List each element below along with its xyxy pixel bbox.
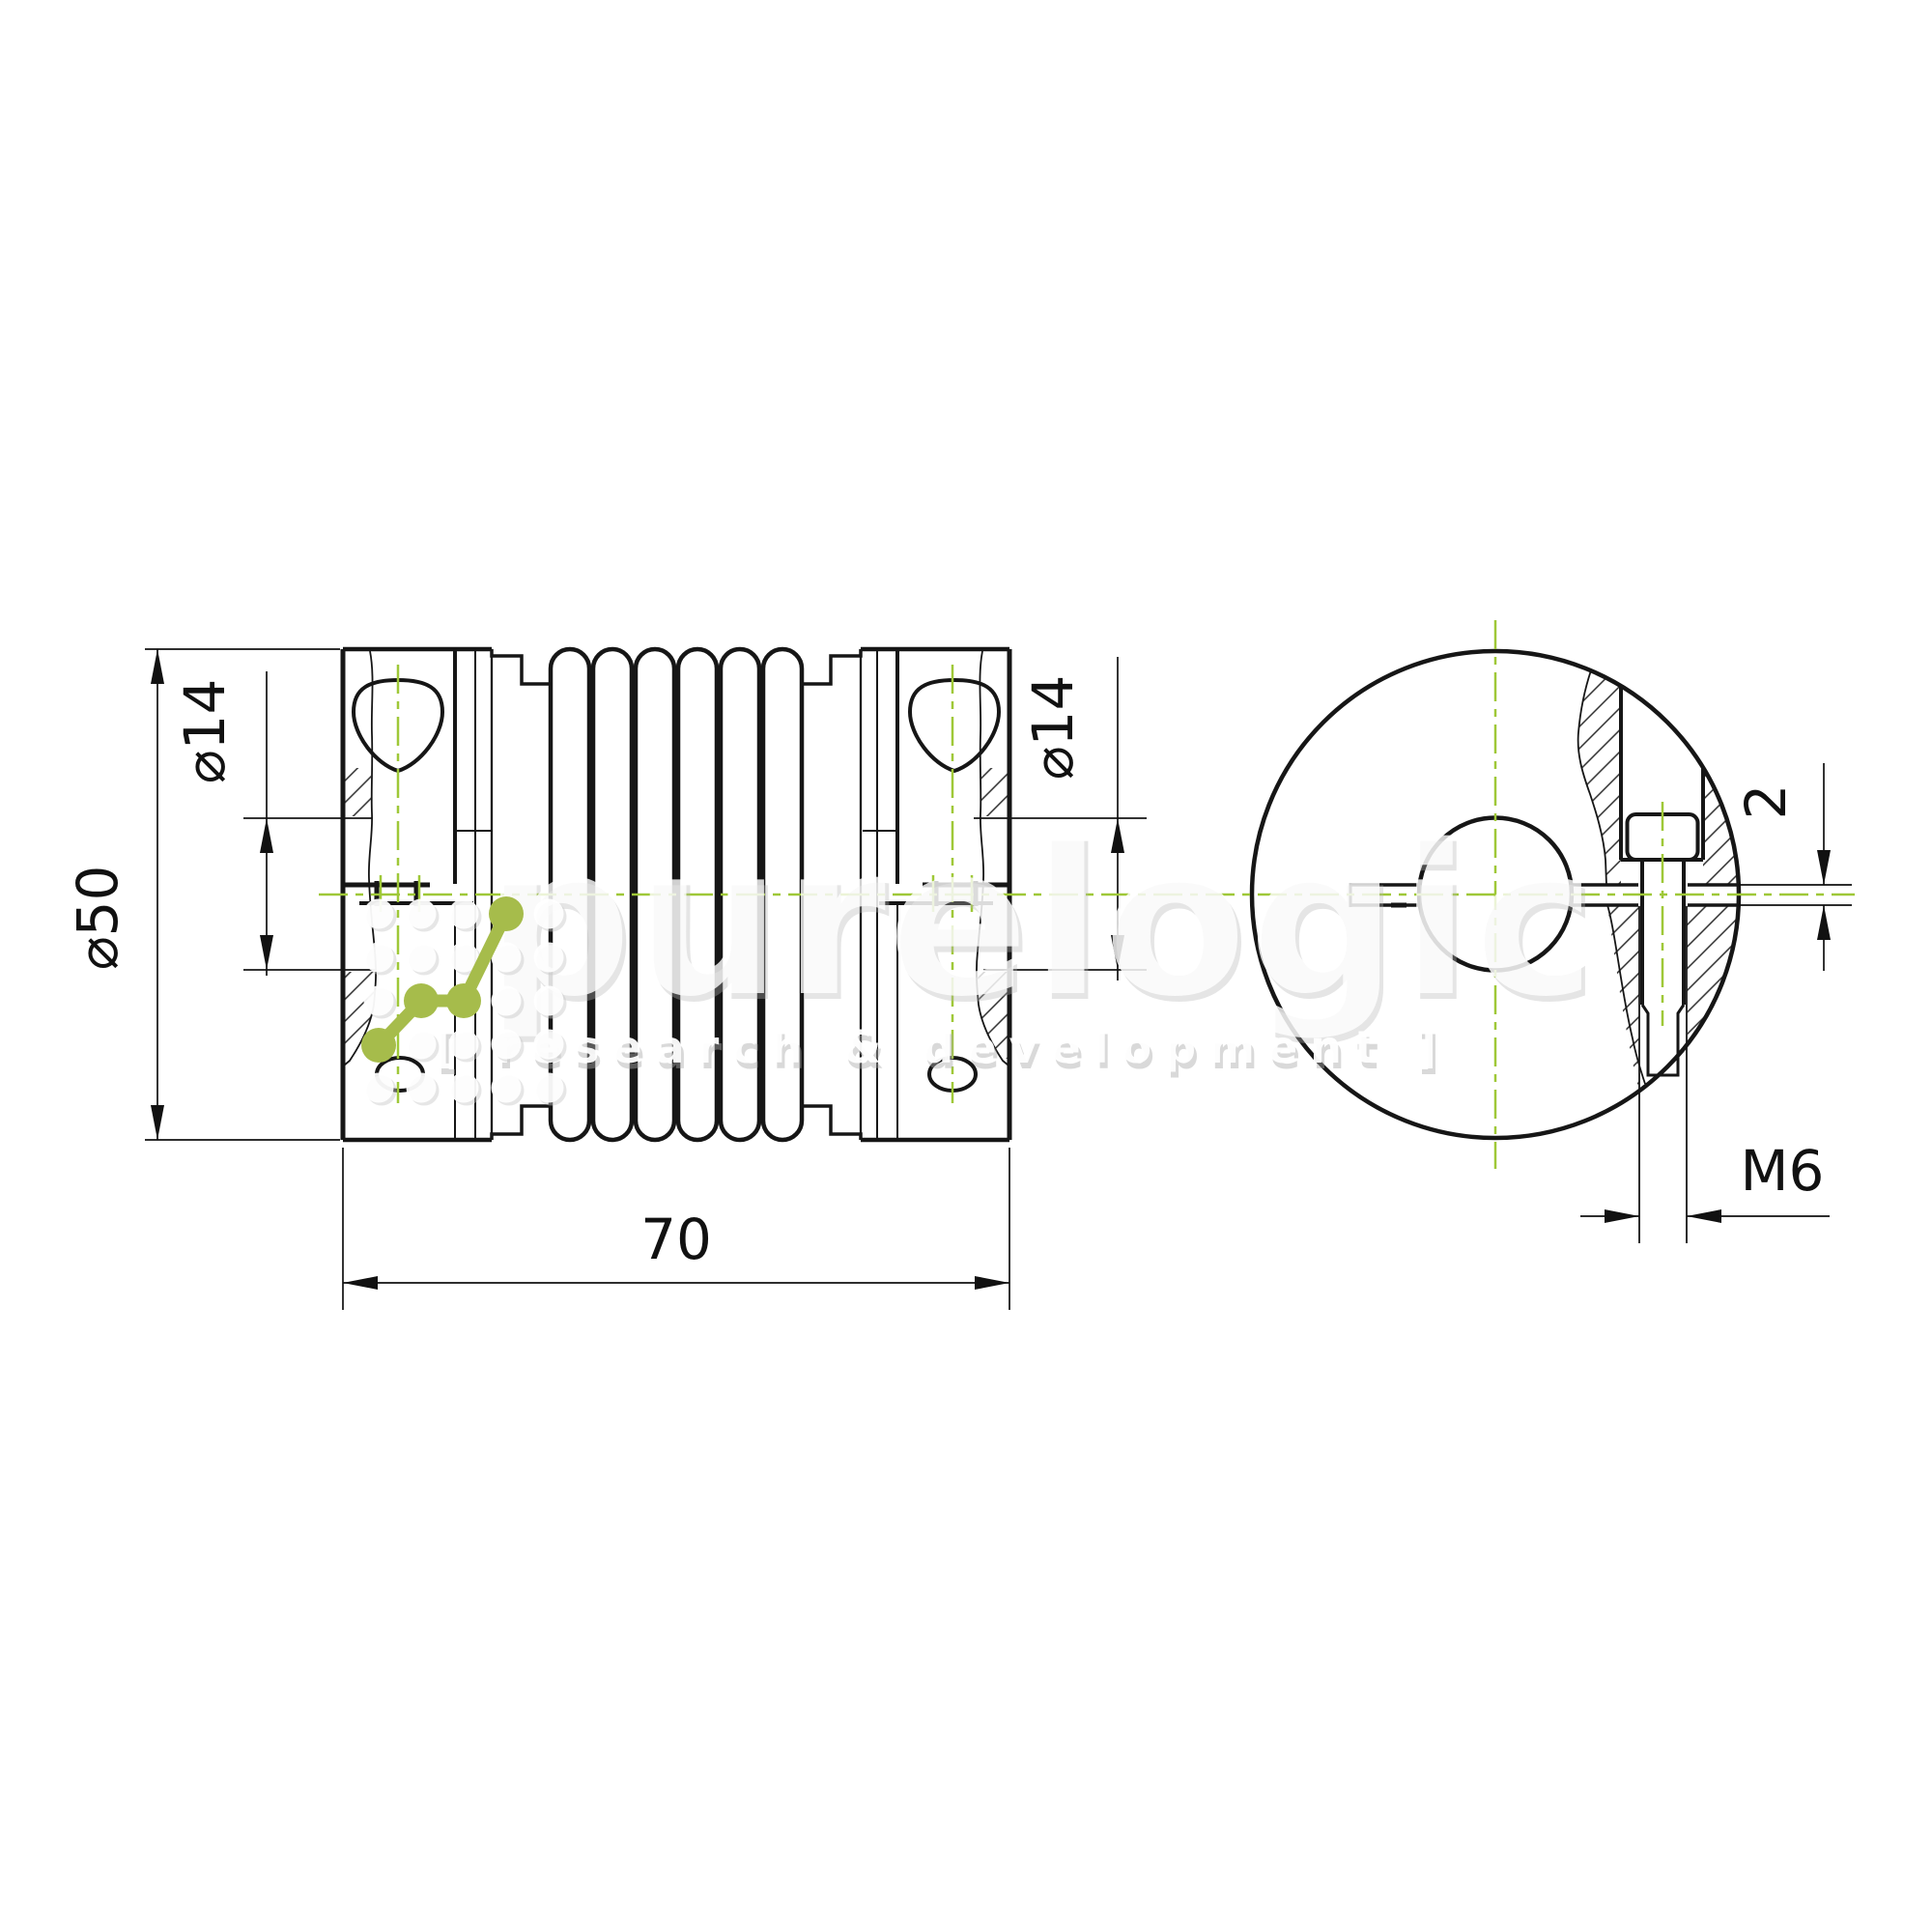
dim-overall-length-label: 70 bbox=[640, 1207, 712, 1272]
watermark-brand-text: purelogic bbox=[483, 800, 1597, 1042]
dim-outer-diameter-label: ⌀50 bbox=[65, 866, 130, 971]
watermark-layer: purelogic purelogic [ research & develop… bbox=[361, 800, 1601, 1106]
dim-bore-left bbox=[260, 671, 273, 976]
dim-bore-right-label: ⌀14 bbox=[1020, 675, 1086, 781]
dim-thread-label: M6 bbox=[1741, 1138, 1825, 1204]
end-view-hatching bbox=[1578, 670, 1739, 1091]
dim-slot-width-label: 2 bbox=[1733, 784, 1799, 820]
watermark-tagline-text: [ research & development ] bbox=[435, 1021, 1449, 1073]
right-screw-recess-hole bbox=[910, 680, 999, 771]
dim-bore-left-label: ⌀14 bbox=[172, 679, 238, 784]
drawing-page: purelogic purelogic [ research & develop… bbox=[0, 0, 1932, 1932]
technical-drawing-canvas: purelogic purelogic [ research & develop… bbox=[0, 0, 1932, 1932]
dim-thread bbox=[1580, 1209, 1830, 1223]
